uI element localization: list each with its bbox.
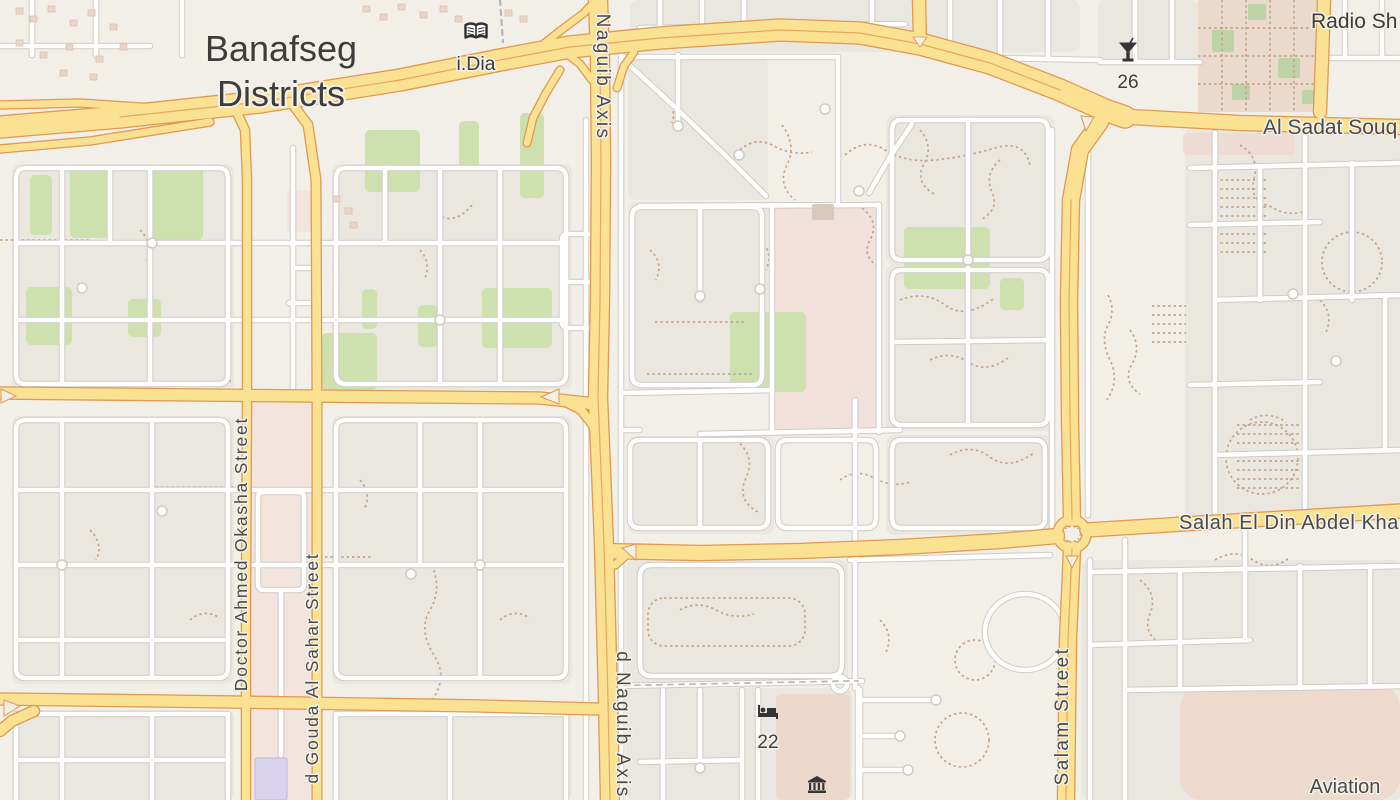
svg-text:i.Dia: i.Dia	[456, 53, 495, 75]
svg-text:Aviation: Aviation	[1310, 776, 1381, 798]
svg-text:d Gouda Al Sahar Street: d Gouda Al Sahar Street	[302, 552, 322, 783]
svg-text:Doctor Ahmed Okasha Street: Doctor Ahmed Okasha Street	[231, 417, 251, 691]
svg-text:Al Sadat Souq: Al Sadat Souq	[1263, 116, 1397, 139]
svg-text:Radio Sh: Radio Sh	[1311, 10, 1397, 33]
svg-text:Districts: Districts	[217, 73, 345, 114]
svg-text:d Naguib Axis: d Naguib Axis	[612, 651, 633, 798]
svg-text:22: 22	[757, 732, 778, 753]
svg-text:Salam Street: Salam Street	[1052, 647, 1073, 786]
svg-text:Salah El Din Abdel Kha: Salah El Din Abdel Kha	[1179, 512, 1399, 534]
svg-text:26: 26	[1117, 72, 1138, 93]
svg-text:Banafseg: Banafseg	[205, 28, 357, 69]
svg-text:Naguib Axis: Naguib Axis	[592, 14, 613, 141]
